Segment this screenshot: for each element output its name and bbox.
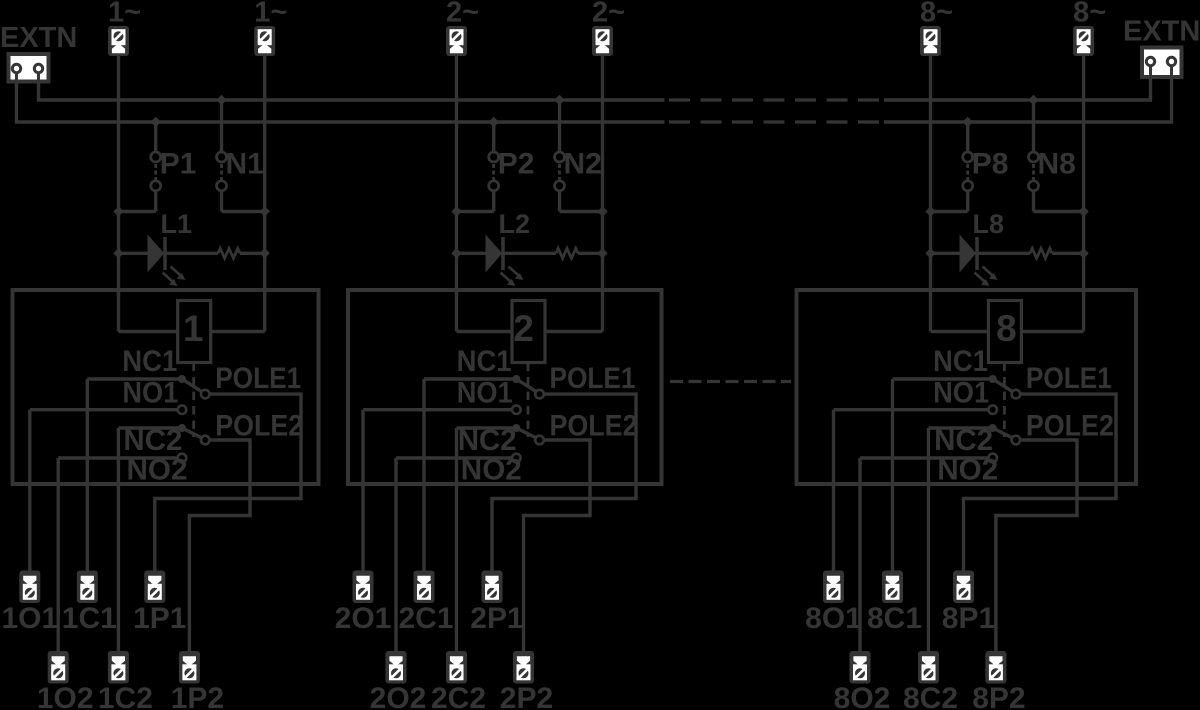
svg-text:P1: P1 <box>160 148 197 181</box>
svg-text:2O2: 2O2 <box>370 682 427 710</box>
svg-text:1C2: 1C2 <box>98 682 153 710</box>
svg-text:1~: 1~ <box>108 0 141 29</box>
svg-text:2P2: 2P2 <box>500 682 553 710</box>
svg-text:P2: P2 <box>498 148 535 181</box>
svg-text:POLE1: POLE1 <box>1026 362 1112 395</box>
svg-text:EXTN: EXTN <box>0 22 77 54</box>
svg-text:8O2: 8O2 <box>834 682 891 710</box>
svg-text:NC2: NC2 <box>934 424 993 457</box>
svg-text:N1: N1 <box>226 148 264 181</box>
svg-text:EXTN: EXTN <box>1123 16 1200 48</box>
svg-text:NC1: NC1 <box>933 345 988 378</box>
svg-text:2~: 2~ <box>446 0 479 29</box>
svg-text:8~: 8~ <box>1073 0 1106 29</box>
svg-text:NC1: NC1 <box>457 345 512 378</box>
svg-text:P8: P8 <box>972 148 1009 181</box>
svg-text:POLE2: POLE2 <box>550 410 638 443</box>
svg-text:L8: L8 <box>973 209 1005 239</box>
svg-text:1: 1 <box>183 308 204 349</box>
svg-text:1~: 1~ <box>254 0 287 29</box>
svg-text:1O2: 1O2 <box>37 682 94 710</box>
svg-text:POLE1: POLE1 <box>550 362 636 395</box>
svg-text:2~: 2~ <box>592 0 625 29</box>
svg-text:NO1: NO1 <box>933 377 989 410</box>
svg-text:POLE2: POLE2 <box>215 410 303 443</box>
svg-text:POLE1: POLE1 <box>215 362 301 395</box>
svg-text:2C1: 2C1 <box>398 602 453 635</box>
svg-text:8P2: 8P2 <box>972 682 1025 710</box>
svg-text:1P1: 1P1 <box>133 602 186 635</box>
svg-text:NC2: NC2 <box>123 424 182 457</box>
svg-text:NC2: NC2 <box>458 424 517 457</box>
svg-text:NO1: NO1 <box>457 377 513 410</box>
svg-text:POLE2: POLE2 <box>1026 410 1114 443</box>
svg-text:2: 2 <box>513 308 534 349</box>
svg-text:NO2: NO2 <box>461 454 522 487</box>
svg-text:NO1: NO1 <box>122 377 178 410</box>
svg-text:N2: N2 <box>564 148 602 181</box>
svg-text:8: 8 <box>996 308 1017 349</box>
svg-text:8C2: 8C2 <box>903 682 958 710</box>
svg-text:1O1: 1O1 <box>1 602 58 635</box>
svg-text:NO2: NO2 <box>937 454 998 487</box>
svg-text:2P1: 2P1 <box>470 602 523 635</box>
svg-text:1C1: 1C1 <box>62 602 117 635</box>
svg-text:NO2: NO2 <box>127 454 188 487</box>
svg-text:L1: L1 <box>161 209 193 239</box>
svg-text:8P1: 8P1 <box>942 602 995 635</box>
svg-text:NC1: NC1 <box>122 345 177 378</box>
svg-text:8C1: 8C1 <box>867 602 922 635</box>
svg-text:8O1: 8O1 <box>805 602 862 635</box>
svg-text:1P2: 1P2 <box>171 682 224 710</box>
svg-text:2C2: 2C2 <box>431 682 486 710</box>
svg-text:2O1: 2O1 <box>335 602 392 635</box>
svg-text:8~: 8~ <box>920 0 953 29</box>
svg-text:L2: L2 <box>499 209 531 239</box>
svg-text:N8: N8 <box>1038 148 1076 181</box>
